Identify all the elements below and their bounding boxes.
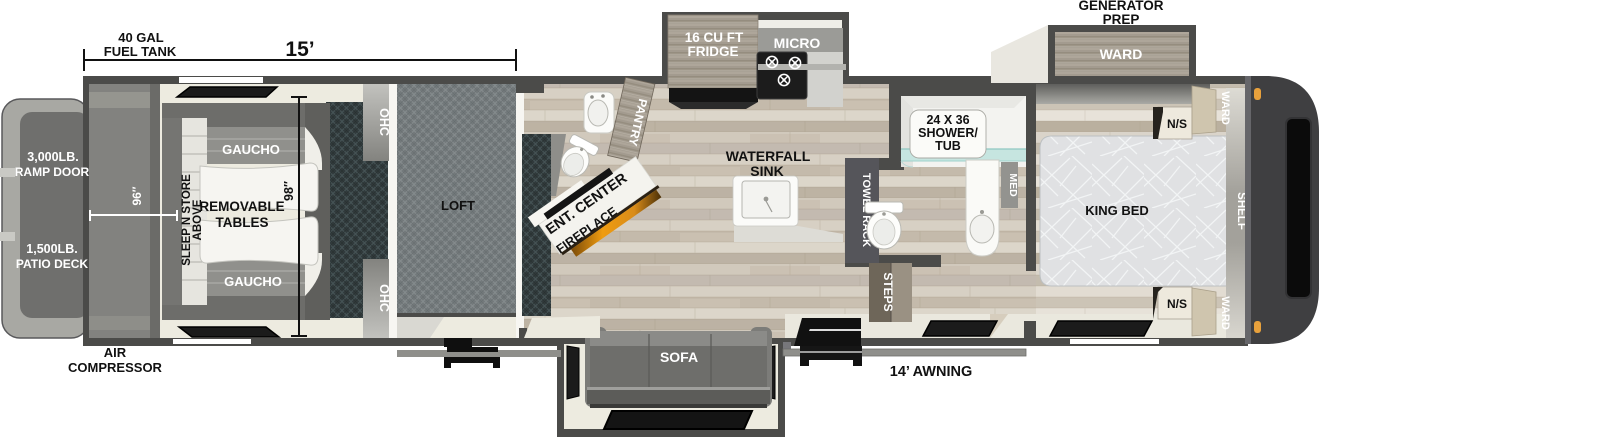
svg-text:STEPS: STEPS: [881, 272, 895, 311]
svg-text:24 X 36: 24 X 36: [926, 113, 969, 127]
svg-text:FUEL TANK: FUEL TANK: [104, 44, 177, 59]
svg-text:98″: 98″: [282, 181, 296, 201]
svg-text:15’: 15’: [285, 38, 314, 61]
svg-text:96″: 96″: [130, 186, 144, 205]
svg-text:PREP: PREP: [1103, 12, 1140, 27]
svg-text:AIR: AIR: [104, 345, 127, 360]
svg-text:SOFA: SOFA: [660, 349, 698, 365]
svg-text:14’ AWNING: 14’ AWNING: [890, 364, 972, 380]
svg-text:OHC: OHC: [377, 284, 391, 312]
svg-text:GAUCHO: GAUCHO: [222, 142, 280, 157]
svg-text:KING BED: KING BED: [1085, 203, 1149, 218]
svg-text:N/S: N/S: [1167, 117, 1187, 131]
svg-text:WARD: WARD: [1219, 91, 1231, 125]
svg-text:WARD: WARD: [1100, 46, 1143, 62]
svg-text:TUB: TUB: [935, 139, 961, 153]
svg-text:RAMP DOOR: RAMP DOOR: [15, 165, 90, 179]
svg-text:WARD: WARD: [1219, 296, 1231, 330]
svg-text:TABLES: TABLES: [216, 215, 269, 230]
svg-text:40 GAL: 40 GAL: [118, 30, 164, 45]
svg-text:OHC: OHC: [377, 108, 391, 136]
svg-text:ABOVE: ABOVE: [192, 199, 204, 240]
svg-text:SHOWER/: SHOWER/: [918, 126, 978, 140]
svg-text:MED: MED: [1007, 173, 1019, 197]
svg-text:REMOVABLE: REMOVABLE: [199, 199, 284, 214]
svg-text:SINK: SINK: [750, 163, 783, 179]
svg-text:COMPRESSOR: COMPRESSOR: [68, 360, 163, 375]
svg-text:WATERFALL: WATERFALL: [726, 148, 811, 164]
svg-text:FRIDGE: FRIDGE: [687, 44, 738, 59]
svg-text:LOFT: LOFT: [441, 198, 475, 213]
svg-text:MICRO: MICRO: [774, 35, 821, 51]
svg-text:PATIO DECK: PATIO DECK: [16, 257, 89, 271]
svg-text:1,500LB.: 1,500LB.: [26, 242, 77, 256]
svg-text:3,000LB.: 3,000LB.: [27, 150, 78, 164]
svg-text:16 CU FT: 16 CU FT: [685, 30, 744, 45]
svg-text:GAUCHO: GAUCHO: [224, 274, 282, 289]
svg-text:N/S: N/S: [1167, 297, 1187, 311]
